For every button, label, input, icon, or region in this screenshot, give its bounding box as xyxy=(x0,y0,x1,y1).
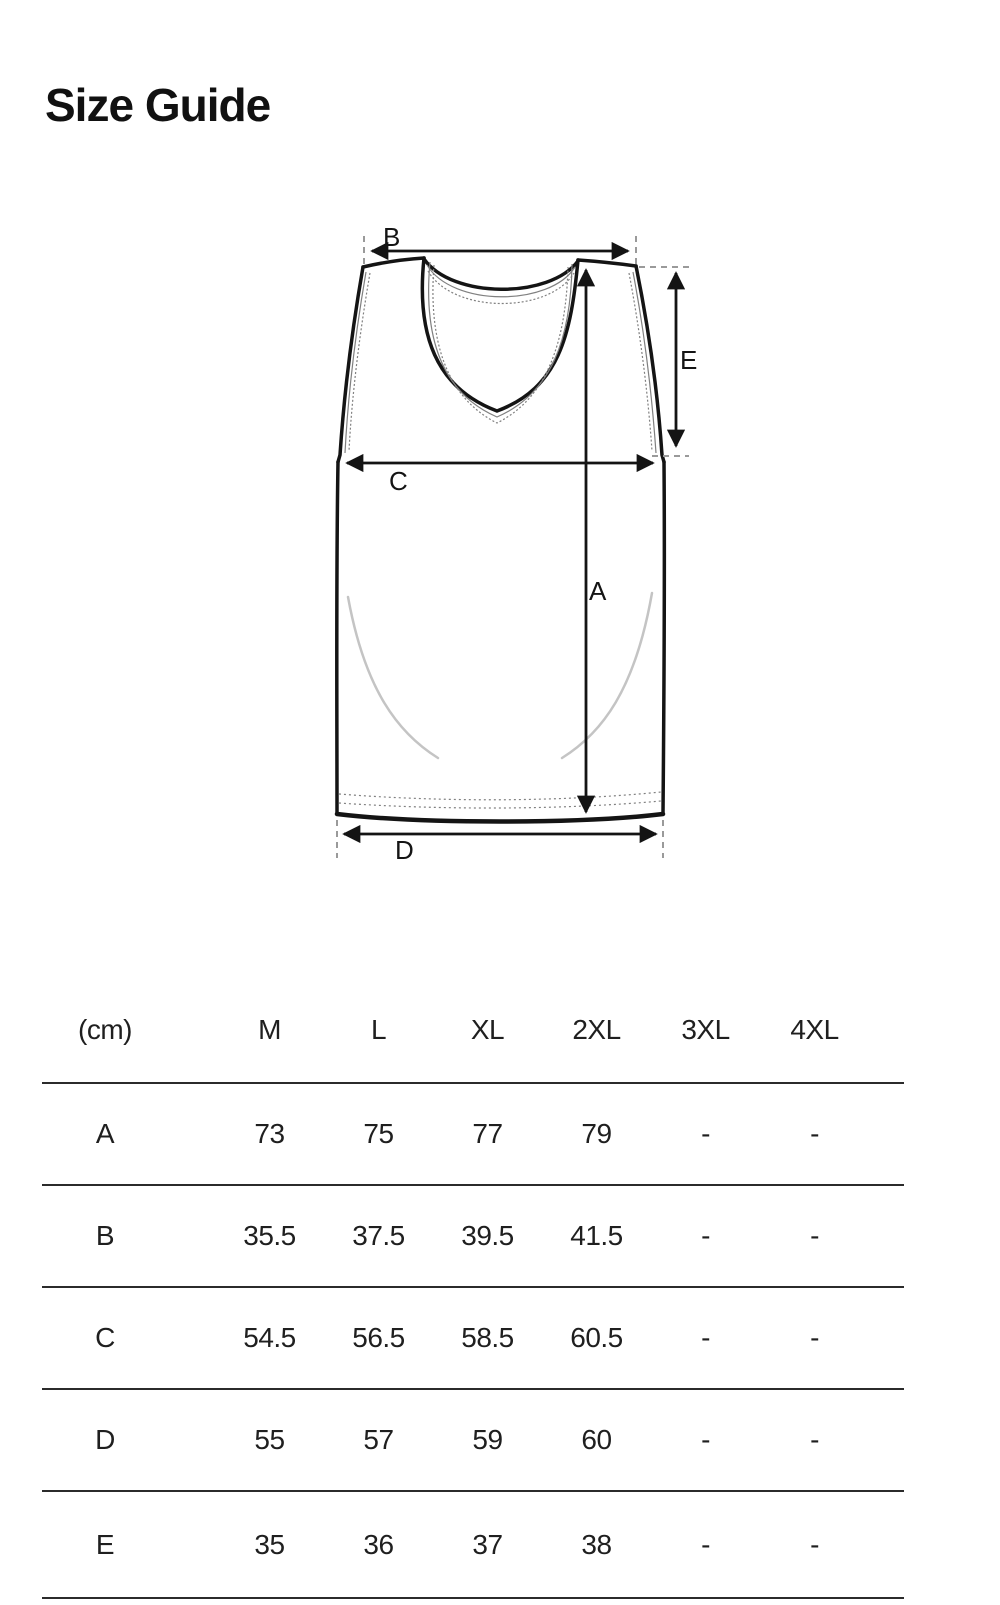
size-value-cell: 35 xyxy=(215,1529,324,1561)
table-row-b: B 35.5 37.5 39.5 41.5 - - xyxy=(42,1184,904,1286)
size-value-cell: - xyxy=(760,1322,869,1354)
measure-label-e: E xyxy=(680,345,697,375)
size-value-cell: - xyxy=(760,1220,869,1252)
size-value-cell: - xyxy=(651,1118,760,1150)
strap-top-left xyxy=(363,258,424,267)
row-label: D xyxy=(42,1424,168,1456)
size-value-cell: 77 xyxy=(433,1118,542,1150)
column-header-4xl: 4XL xyxy=(760,1014,869,1046)
size-value-cell: 60 xyxy=(542,1424,651,1456)
left-side-seam xyxy=(337,462,338,814)
size-value-cell: 41.5 xyxy=(542,1220,651,1252)
measure-label-b: B xyxy=(383,222,400,252)
size-value-cell: 75 xyxy=(324,1118,433,1150)
size-value-cell: 58.5 xyxy=(433,1322,542,1354)
guide-lines xyxy=(337,236,689,858)
strap-top-right xyxy=(578,260,636,266)
column-header-l: L xyxy=(324,1014,433,1046)
table-row-c: C 54.5 56.5 58.5 60.5 - - xyxy=(42,1286,904,1388)
size-table: (cm) M L XL 2XL 3XL 4XL A 73 75 77 79 - … xyxy=(42,978,904,1599)
size-value-cell: 37.5 xyxy=(324,1220,433,1252)
row-label: A xyxy=(42,1118,168,1150)
size-value-cell: 39.5 xyxy=(433,1220,542,1252)
front-neck-scoop xyxy=(422,258,578,411)
size-value-cell: - xyxy=(651,1424,760,1456)
size-value-cell: - xyxy=(651,1220,760,1252)
size-value-cell: 73 xyxy=(215,1118,324,1150)
unit-header: (cm) xyxy=(42,1014,168,1046)
column-header-m: M xyxy=(215,1014,324,1046)
table-row-d: D 55 57 59 60 - - xyxy=(42,1388,904,1490)
measure-label-c: C xyxy=(389,466,408,496)
bottom-hem-edge xyxy=(337,814,663,822)
size-value-cell: - xyxy=(760,1529,869,1561)
measure-label-a: A xyxy=(589,576,607,606)
size-value-cell: 36 xyxy=(324,1529,433,1561)
column-header-xl: XL xyxy=(433,1014,542,1046)
size-value-cell: 38 xyxy=(542,1529,651,1561)
size-value-cell: - xyxy=(651,1322,760,1354)
right-armhole-edge xyxy=(636,266,664,462)
size-value-cell: 55 xyxy=(215,1424,324,1456)
row-label: E xyxy=(42,1529,168,1561)
size-value-cell: - xyxy=(760,1118,869,1150)
size-value-cell: 59 xyxy=(433,1424,542,1456)
size-value-cell: 60.5 xyxy=(542,1322,651,1354)
size-diagram: B E C A D xyxy=(0,0,1000,920)
column-header-3xl: 3XL xyxy=(651,1014,760,1046)
size-value-cell: 35.5 xyxy=(215,1220,324,1252)
right-side-seam xyxy=(663,462,664,814)
tank-top-outline xyxy=(337,258,665,822)
table-row-a: A 73 75 77 79 - - xyxy=(42,1082,904,1184)
row-label: B xyxy=(42,1220,168,1252)
size-value-cell: 54.5 xyxy=(215,1322,324,1354)
size-value-cell: - xyxy=(651,1529,760,1561)
measure-label-d: D xyxy=(395,835,414,865)
fabric-wrinkles xyxy=(348,593,652,758)
row-label: C xyxy=(42,1322,168,1354)
table-row-e: E 35 36 37 38 - - xyxy=(42,1490,904,1599)
size-value-cell: 56.5 xyxy=(324,1322,433,1354)
size-value-cell: - xyxy=(760,1424,869,1456)
hem-stitch-line xyxy=(339,801,661,808)
size-value-cell: 57 xyxy=(324,1424,433,1456)
size-value-cell: 79 xyxy=(542,1118,651,1150)
size-table-header-row: (cm) M L XL 2XL 3XL 4XL xyxy=(42,978,904,1082)
measure-arrows xyxy=(344,251,676,834)
column-header-2xl: 2XL xyxy=(542,1014,651,1046)
size-value-cell: 37 xyxy=(433,1529,542,1561)
stitching-details xyxy=(339,262,661,808)
hem-stitch-line xyxy=(339,792,661,800)
